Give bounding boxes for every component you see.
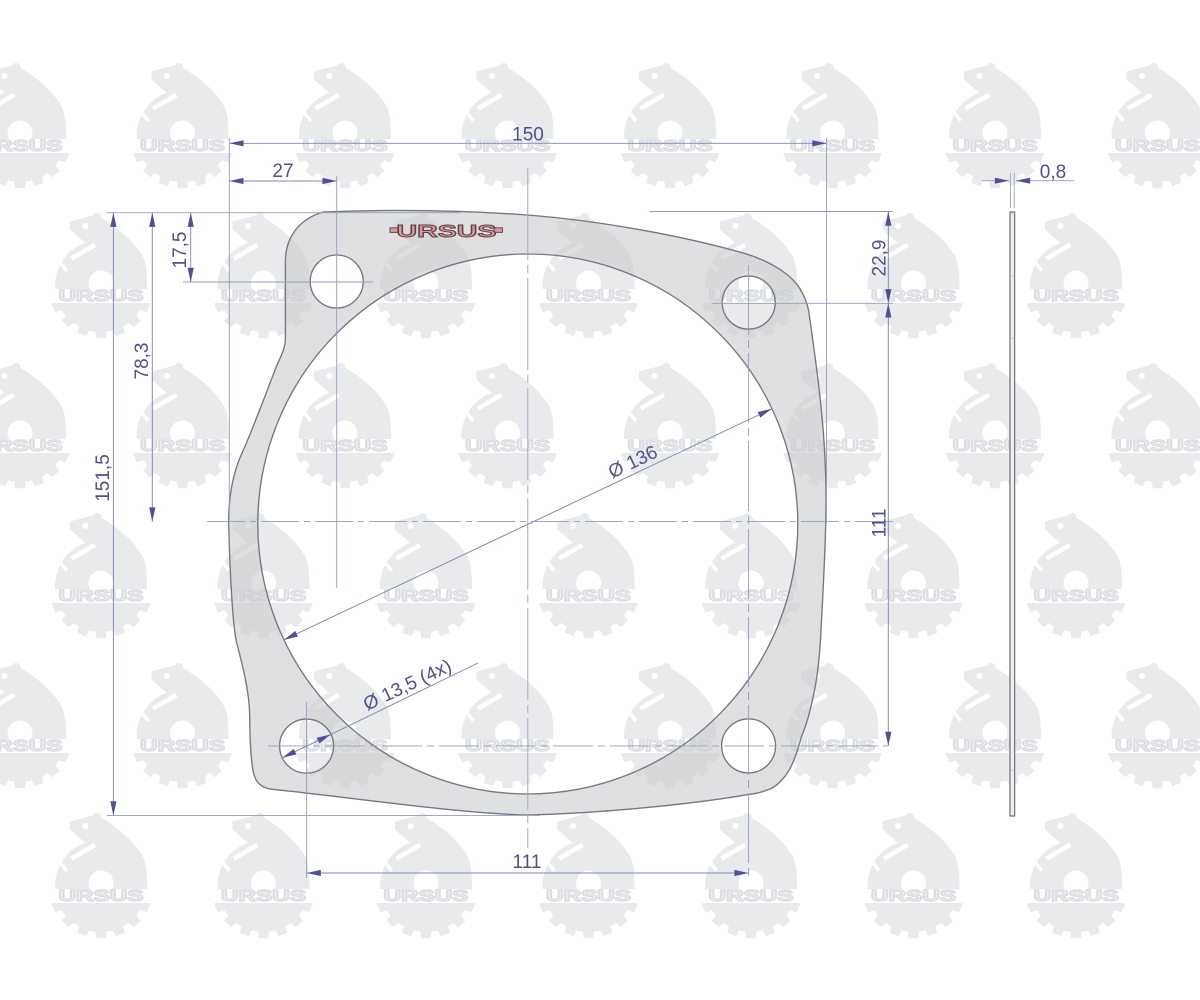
svg-text:22,9: 22,9 <box>870 240 891 277</box>
svg-text:0,8: 0,8 <box>1040 162 1066 183</box>
svg-text:17,5: 17,5 <box>170 232 191 269</box>
svg-text:151,5: 151,5 <box>93 454 114 502</box>
svg-text:150: 150 <box>512 125 544 146</box>
svg-text:111: 111 <box>513 852 542 873</box>
svg-text:URSUS: URSUS <box>397 221 497 241</box>
svg-text:78,3: 78,3 <box>132 343 153 380</box>
svg-text:27: 27 <box>272 161 293 182</box>
svg-text:111: 111 <box>870 509 891 538</box>
